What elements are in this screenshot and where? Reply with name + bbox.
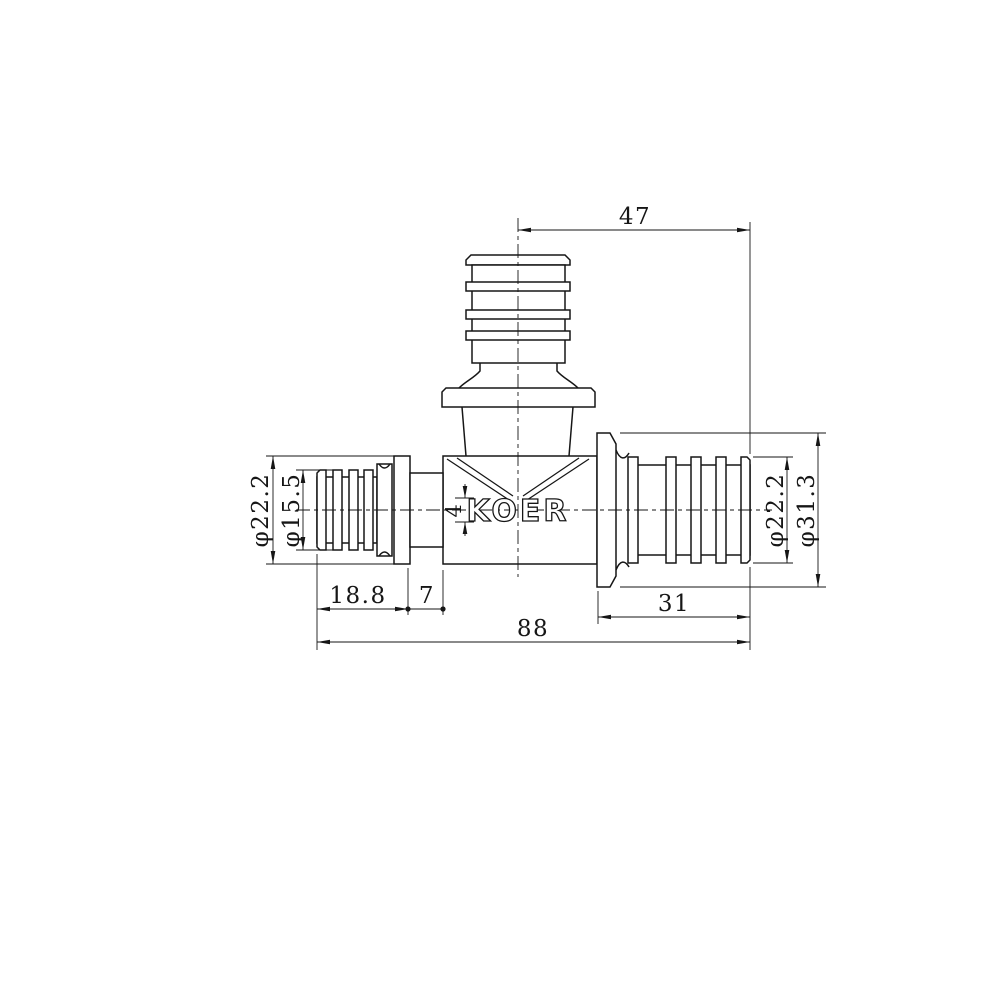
arrowhead xyxy=(737,228,750,233)
dim-overall-length: 88 xyxy=(317,616,750,644)
arrowhead xyxy=(271,551,276,564)
arrowhead xyxy=(785,550,790,563)
dim-label-47: 47 xyxy=(619,204,651,230)
dim-label-left-barb-dia: φ15.5 xyxy=(279,473,305,548)
arrowhead xyxy=(816,574,821,587)
arrowhead xyxy=(816,433,821,446)
drawing-canvas: KOER 47 φ22.2 φ15.5 xyxy=(0,0,1000,1000)
arrowhead xyxy=(317,640,330,645)
dim-label-18-8: 18.8 xyxy=(329,583,386,609)
arrowhead xyxy=(317,607,330,612)
dim-label-left-flange-dia: φ22.2 xyxy=(248,473,274,548)
koer-logo: KOER xyxy=(467,494,570,529)
dim-left-barb-length: 18.8 xyxy=(317,583,408,611)
top-port xyxy=(442,255,595,456)
dim-label-7: 7 xyxy=(419,583,435,609)
flange-taper-left xyxy=(462,407,466,456)
tee-fitting-technical-drawing: KOER 47 φ22.2 φ15.5 xyxy=(0,0,1000,1000)
neck-bell-right xyxy=(557,363,578,388)
dimension-dot xyxy=(440,606,445,611)
neck-bell-left xyxy=(459,363,480,388)
neck-groove-bottom xyxy=(616,562,629,570)
part-outline xyxy=(317,255,750,587)
arrowhead xyxy=(785,457,790,470)
dim-label-31: 31 xyxy=(658,591,690,617)
top-flange xyxy=(442,388,595,407)
arrowhead xyxy=(598,615,611,620)
dim-label-88: 88 xyxy=(517,616,549,642)
dim-label-4: 4 xyxy=(442,503,466,518)
dimension-dot xyxy=(405,606,410,611)
neck-groove-top xyxy=(616,450,629,458)
dim-right-port-length: 31 xyxy=(598,591,750,619)
arrowhead xyxy=(737,615,750,620)
dim-label-right-barb-dia: φ22.2 xyxy=(763,473,789,548)
arrowhead xyxy=(518,228,531,233)
dim-left-gap: 7 xyxy=(405,583,445,612)
flange-taper-right xyxy=(569,407,573,456)
arrowhead xyxy=(737,640,750,645)
arrowhead xyxy=(271,456,276,469)
dim-label-right-flange-dia: φ31.3 xyxy=(794,473,820,548)
